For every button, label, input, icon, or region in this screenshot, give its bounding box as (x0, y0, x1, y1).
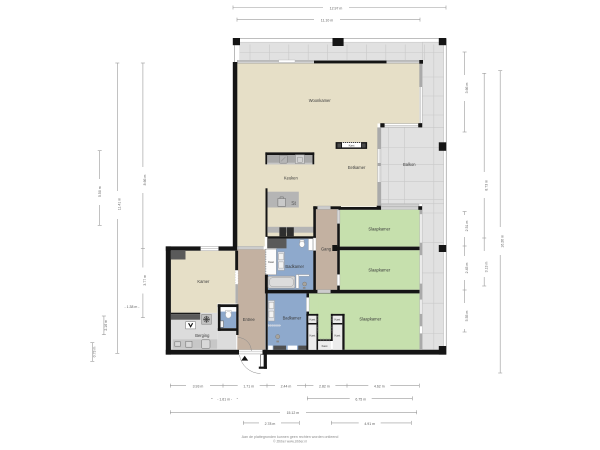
svg-text:2.78 m: 2.78 m (265, 422, 276, 426)
svg-text:Kast: Kast (335, 333, 341, 337)
svg-text:8.66 m: 8.66 m (143, 175, 147, 186)
svg-text:3.77 m: 3.77 m (143, 275, 147, 286)
svg-text:Kast: Kast (322, 344, 328, 348)
svg-text:11.10 m: 11.10 m (321, 18, 333, 22)
svg-text:Slaapkamer: Slaapkamer (359, 316, 381, 321)
svg-text:3.66 m: 3.66 m (465, 83, 469, 94)
svg-text:5.55 m: 5.55 m (465, 311, 469, 322)
svg-text:- 1.38 m -: - 1.38 m - (125, 305, 141, 309)
svg-text:Kast: Kast (335, 317, 341, 321)
svg-text:2.51 m: 2.51 m (465, 221, 469, 232)
svg-text:Kast: Kast (268, 260, 274, 264)
svg-text:Gang: Gang (321, 247, 332, 252)
svg-text:6.75 m: 6.75 m (355, 397, 366, 401)
svg-text:Slaapkamer: Slaapkamer (368, 226, 390, 231)
svg-text:Kast: Kast (310, 317, 316, 321)
svg-text:5.50 m: 5.50 m (98, 186, 102, 197)
svg-text:© Zibber www.zibber.nl: © Zibber www.zibber.nl (273, 440, 307, 444)
svg-text:Woonkamer: Woonkamer (309, 98, 332, 103)
svg-text:11.41 m: 11.41 m (118, 198, 122, 210)
svg-text:1.71 m: 1.71 m (243, 384, 254, 388)
svg-text:4.62 m: 4.62 m (374, 384, 385, 388)
svg-text:St: St (291, 201, 296, 207)
svg-text:2.45 m: 2.45 m (465, 263, 469, 274)
svg-text:12.97 m: 12.97 m (330, 6, 343, 10)
svg-text:4.91 m: 4.91 m (364, 422, 375, 426)
svg-text:Balkon: Balkon (403, 162, 416, 167)
svg-text:Badkamer: Badkamer (285, 264, 304, 269)
svg-text:Berging: Berging (195, 333, 210, 338)
svg-text:Keuken: Keuken (284, 176, 299, 181)
svg-text:Badkamer: Badkamer (283, 316, 302, 321)
svg-text:2.44 m: 2.44 m (281, 384, 292, 388)
svg-text:16.26 m: 16.26 m (500, 235, 504, 248)
svg-text:2.82 m: 2.82 m (319, 384, 330, 388)
svg-text:3.93 m: 3.93 m (193, 384, 204, 388)
svg-text:Entree: Entree (243, 317, 256, 322)
svg-text:Kamer: Kamer (197, 279, 210, 284)
svg-text:Kast: Kast (310, 333, 316, 337)
svg-text:8.73 m: 8.73 m (485, 180, 489, 191)
svg-text:0.73 m: 0.73 m (92, 347, 96, 358)
svg-text:Kast: Kast (349, 144, 355, 148)
svg-text:15.12 m: 15.12 m (287, 411, 300, 415)
svg-text:- 1.61 m -: - 1.61 m - (217, 397, 233, 401)
svg-text:2.16 m: 2.16 m (104, 320, 108, 331)
svg-text:3.13 m: 3.13 m (485, 262, 489, 273)
svg-text:Aan de plattegronden kunnen ge: Aan de plattegronden kunnen geen rechten… (242, 435, 339, 439)
svg-text:Eetkamer: Eetkamer (348, 165, 366, 170)
svg-text:Slaapkamer: Slaapkamer (368, 267, 390, 272)
